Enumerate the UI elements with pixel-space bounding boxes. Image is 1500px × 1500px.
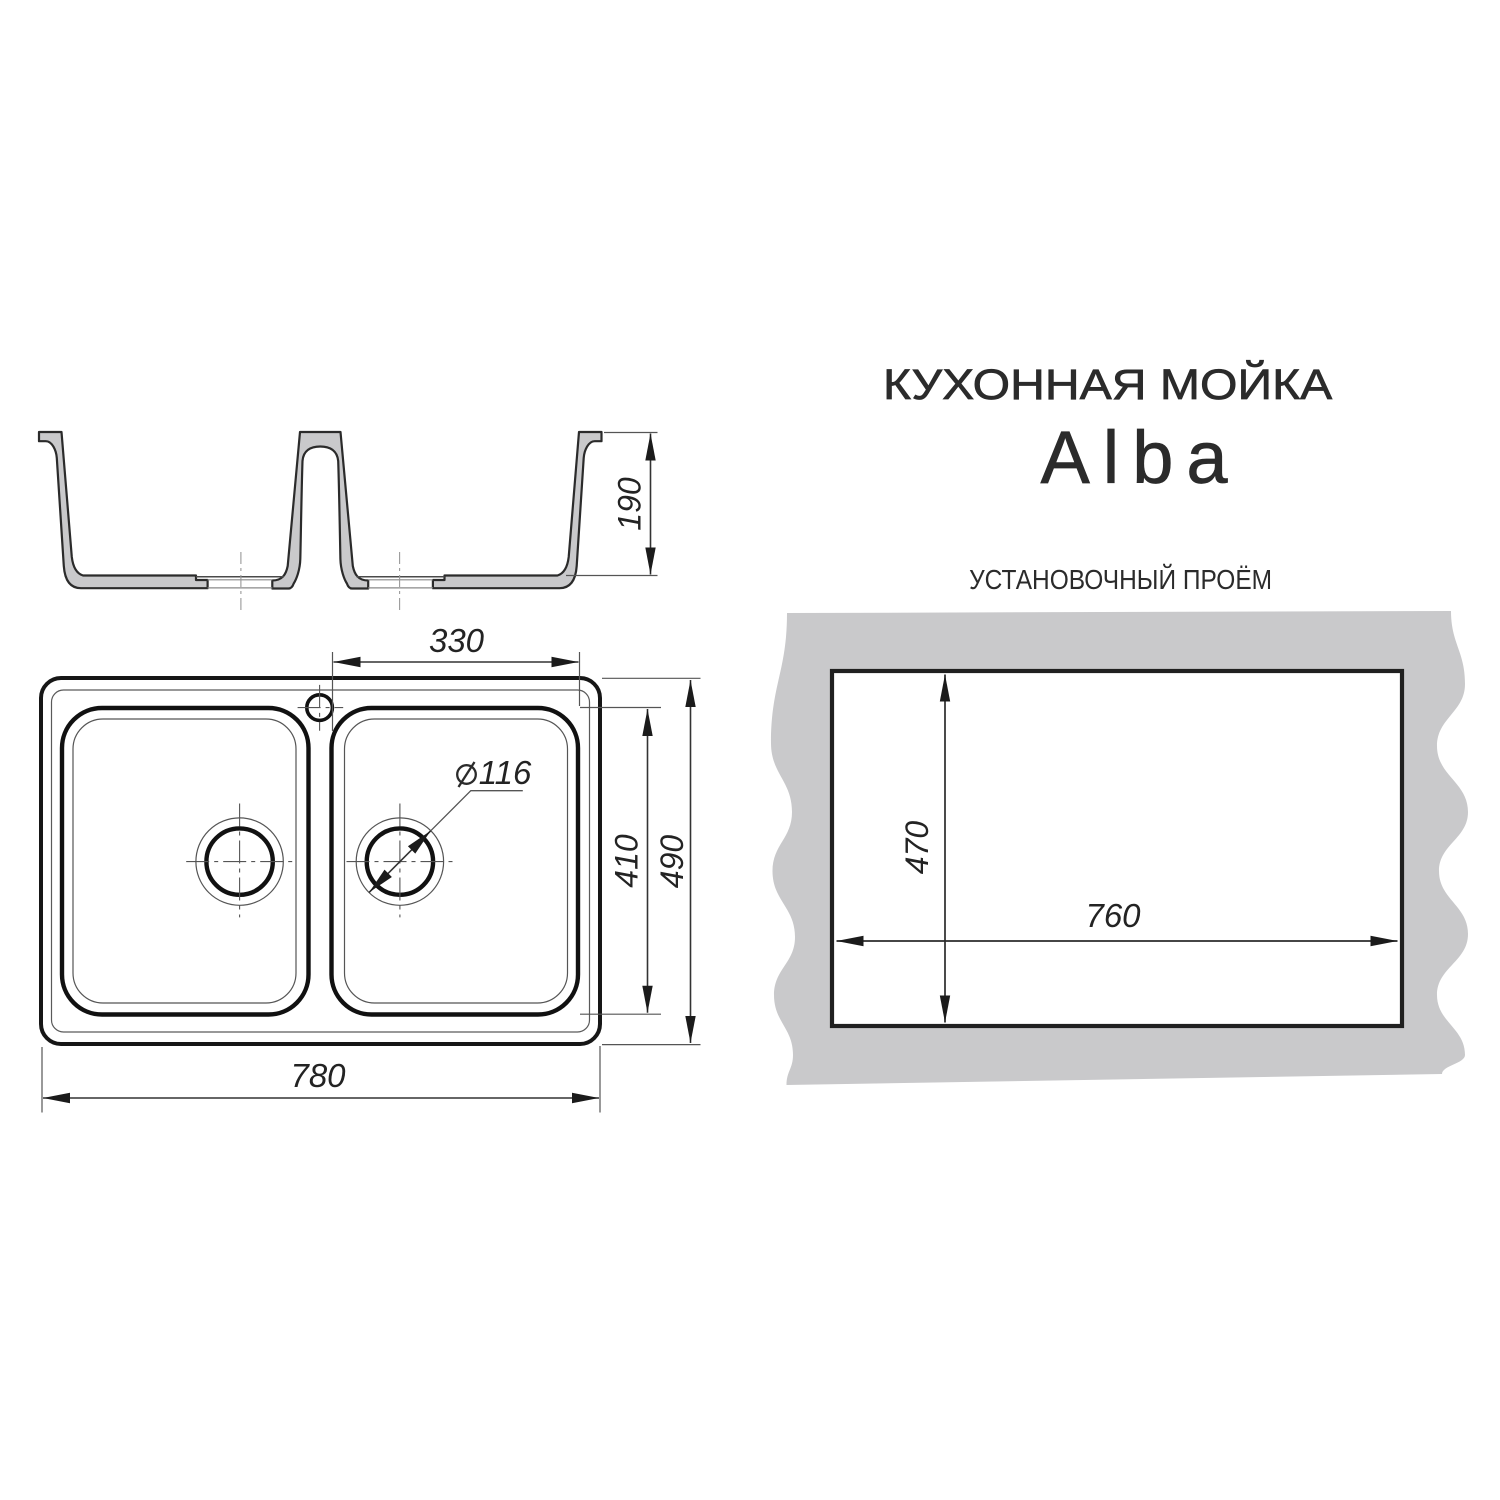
svg-text:УСТАНОВОЧНЫЙ ПРОЁМ: УСТАНОВОЧНЫЙ ПРОЁМ [969,563,1272,595]
svg-text:КУХОННАЯ МОЙКА: КУХОННАЯ МОЙКА [883,359,1333,408]
svg-text:410: 410 [609,834,645,888]
svg-text:490: 490 [654,835,690,889]
svg-text:760: 760 [1085,897,1141,934]
svg-text:116: 116 [479,754,532,791]
svg-text:330: 330 [429,622,485,659]
svg-text:190: 190 [612,477,648,531]
svg-text:780: 780 [290,1057,346,1094]
svg-text:470: 470 [899,821,935,875]
svg-text:Alba: Alba [1040,416,1240,499]
